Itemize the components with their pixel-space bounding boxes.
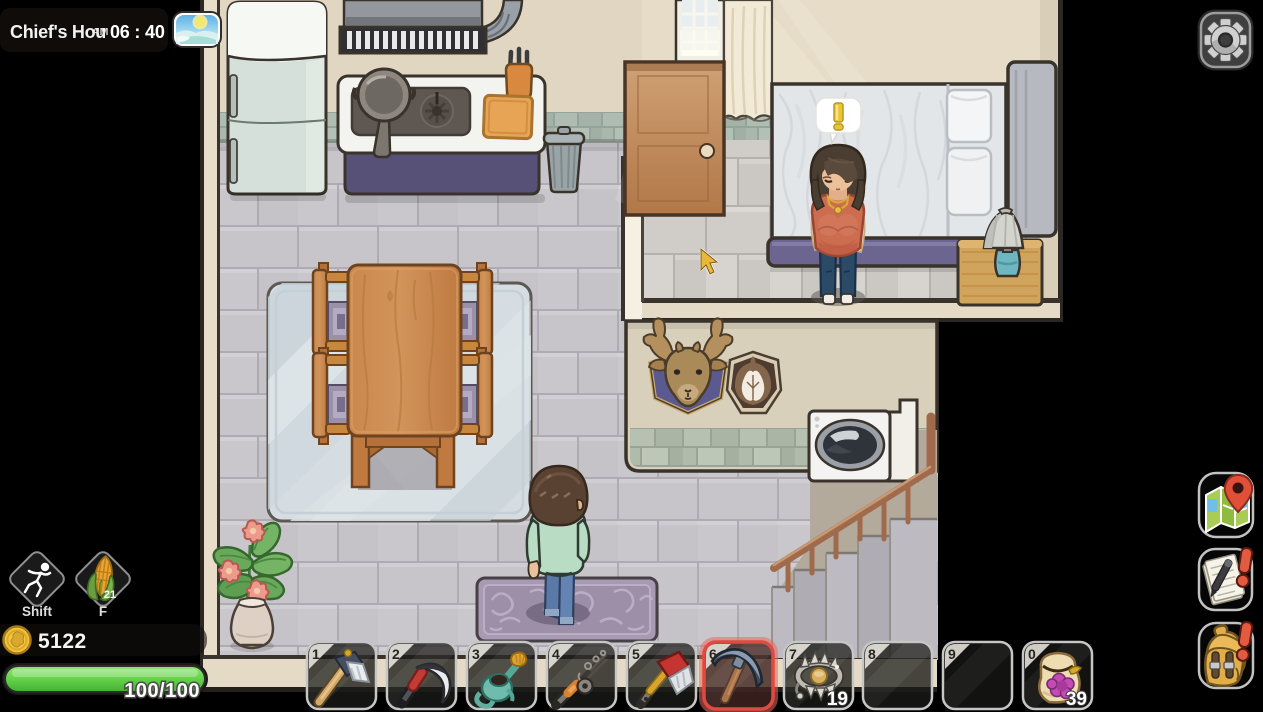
- svg-text:19: 19: [827, 689, 848, 710]
- svg-text:Shift: Shift: [22, 604, 52, 619]
- svg-text:5: 5: [632, 646, 640, 662]
- svg-text:5122: 5122: [38, 630, 87, 653]
- svg-text:6: 6: [709, 646, 717, 662]
- svg-text:1: 1: [312, 646, 320, 662]
- svg-text:F: F: [99, 604, 107, 619]
- svg-text:9: 9: [948, 646, 956, 662]
- svg-text:100/100: 100/100: [124, 680, 200, 702]
- svg-text:8: 8: [868, 646, 876, 662]
- svg-text:06 : 40: 06 : 40: [110, 22, 165, 42]
- svg-text:2: 2: [392, 646, 400, 662]
- svg-text:0: 0: [1028, 646, 1036, 662]
- svg-text:39: 39: [1066, 689, 1087, 710]
- svg-text:21: 21: [104, 589, 116, 601]
- svg-text:3: 3: [472, 646, 480, 662]
- svg-text:7: 7: [789, 646, 797, 662]
- svg-text:AM: AM: [92, 26, 109, 38]
- svg-text:4: 4: [552, 646, 560, 662]
